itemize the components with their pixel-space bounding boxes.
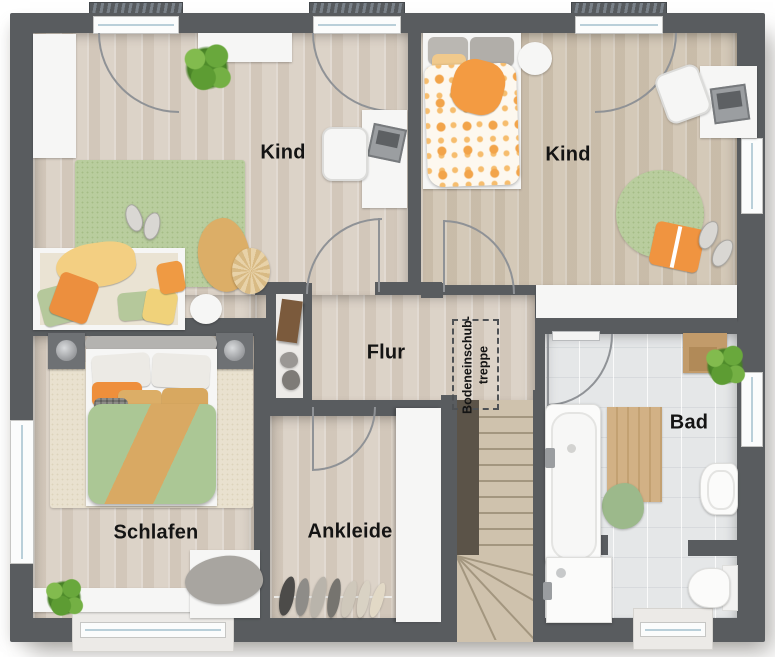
pillow [151, 353, 211, 390]
room-label-schlafen: Schlafen [114, 522, 199, 545]
shower-faucet-icon [543, 582, 552, 600]
room-label-bad: Bad [670, 412, 708, 435]
shower-drain [556, 568, 566, 578]
window [10, 420, 34, 564]
shower-tray [546, 557, 612, 623]
wall-divider-kids [408, 13, 421, 295]
room-label-kind-right: Kind [545, 144, 590, 167]
window [313, 16, 401, 34]
towel-rail [552, 331, 600, 341]
side-table [190, 294, 222, 324]
desk-chair [322, 127, 368, 181]
plant-icon [700, 340, 750, 392]
plant-icon [177, 38, 237, 98]
pillow [156, 260, 187, 295]
door-leaf [443, 220, 445, 292]
side-table [518, 42, 552, 75]
duvet [88, 404, 216, 504]
room-label-kind-left: Kind [260, 142, 305, 165]
window [741, 138, 763, 214]
toilet-bowl [688, 568, 730, 608]
stair-void [457, 400, 479, 555]
window [575, 16, 663, 34]
door-leaf [312, 407, 314, 469]
laptop-icon [367, 123, 407, 163]
lamp-icon [224, 340, 245, 361]
window [741, 372, 763, 447]
built-in-closet [536, 285, 737, 320]
pillow [141, 287, 178, 325]
floor-plan: Bodeneinschub- treppe Kind Kind Flur Sch… [0, 0, 775, 657]
shoes [280, 352, 298, 368]
room-label-ankleide: Ankleide [308, 521, 393, 544]
loft-ladder-label: Bodeneinschub- treppe [460, 316, 491, 414]
window [93, 16, 179, 34]
window [80, 622, 226, 638]
wall-stairs-right [533, 390, 545, 642]
stair-treads [479, 402, 533, 555]
wardrobe [33, 34, 76, 158]
basket [232, 248, 270, 294]
plant-icon [40, 574, 88, 622]
laptop-icon [710, 84, 751, 125]
wall-stairs-left [441, 395, 457, 642]
bath-drain [567, 444, 576, 453]
door-leaf [547, 334, 549, 404]
shoes [282, 370, 300, 390]
bathtub-basin [551, 412, 597, 560]
wall-bad-stub-toilet [688, 540, 737, 556]
lamp-icon [56, 340, 77, 361]
room-label-flur: Flur [367, 342, 406, 365]
towel [602, 483, 644, 529]
loft-ladder-outline: Bodeneinschub- treppe [452, 319, 499, 410]
wardrobe-tall [396, 408, 441, 622]
sink-basin [707, 470, 735, 510]
window [640, 622, 706, 637]
door-leaf [378, 218, 380, 292]
wall-kind2-corner [421, 283, 443, 298]
stair-winders [457, 555, 533, 640]
bath-faucet-icon [545, 448, 555, 468]
